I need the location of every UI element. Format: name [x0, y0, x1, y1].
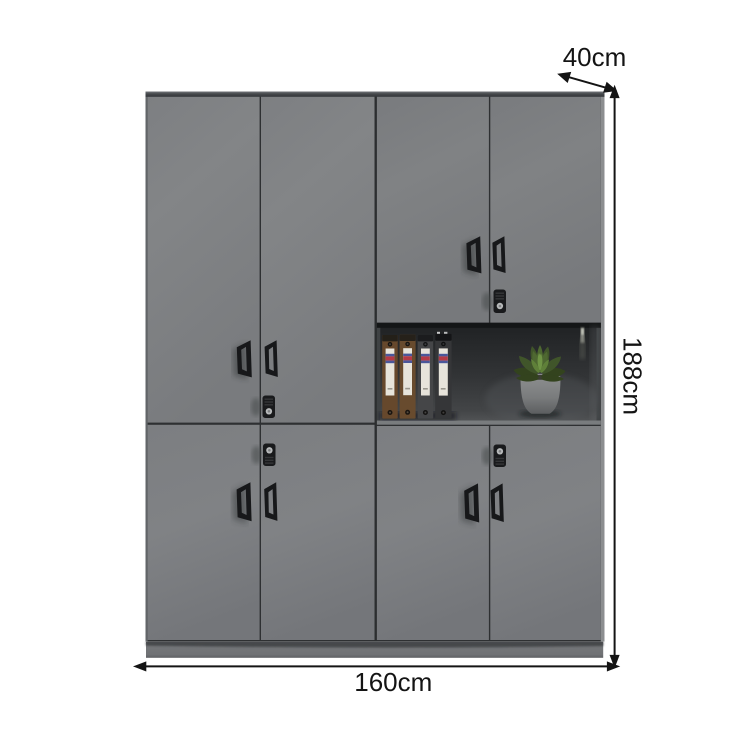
- svg-text:160cm: 160cm: [354, 667, 432, 697]
- svg-text:40cm: 40cm: [563, 42, 627, 72]
- svg-text:188cm: 188cm: [618, 337, 648, 415]
